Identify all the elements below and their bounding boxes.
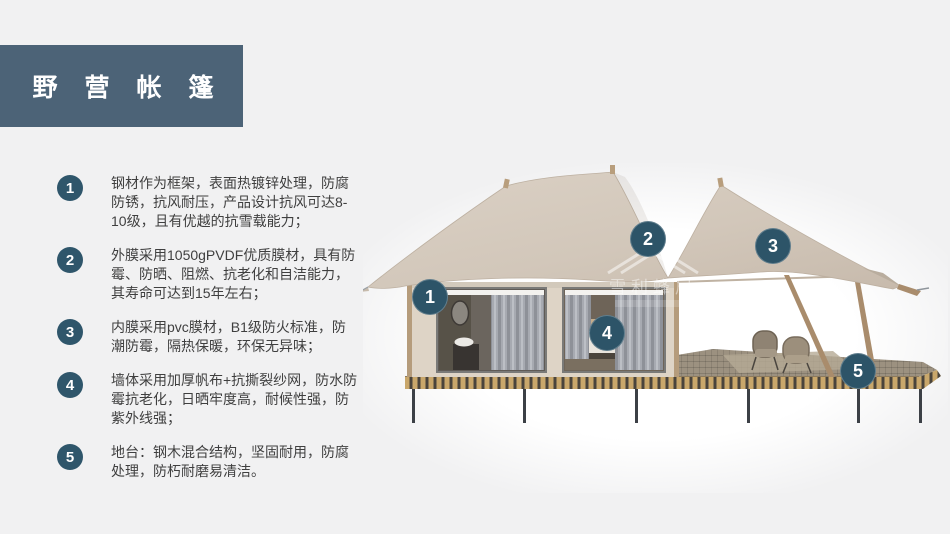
tent-svg: 雪利蜂居 [363, 163, 948, 493]
feature-number-badge: 3 [57, 319, 83, 345]
feature-text: 地台：钢木混合结构，坚固耐用，防腐处理，防朽耐磨易清洁。 [111, 443, 359, 481]
tent-illustration: 雪利蜂居 [363, 163, 948, 493]
watermark-text: 雪利蜂居 [609, 278, 697, 297]
feature-list: 1 钢材作为框架，表面热镀锌处理，防腐防锈，抗风耐压，产品设计抗风可达8-10级… [57, 174, 387, 496]
feature-item-4: 4 墙体采用加厚帆布+抗撕裂纱网，防水防霉抗老化，日晒牢度高，耐候性强，防紫外线… [57, 371, 387, 428]
left-window [437, 288, 546, 372]
feature-number-badge: 2 [57, 247, 83, 273]
page-title: 野营帐篷 [2, 68, 240, 104]
feature-number-badge: 4 [57, 372, 83, 398]
callout-badge-4: 4 [589, 315, 625, 351]
feature-text: 内膜采用pvc膜材，B1级防火标准，防潮防霉，隔热保暖，环保无异味； [111, 318, 359, 356]
feature-number-badge: 1 [57, 175, 83, 201]
callout-badge-3: 3 [755, 228, 791, 264]
steel-legs [412, 389, 922, 423]
feature-text: 外膜采用1050gPVDF优质膜材，具有防霉、防晒、阻燃、抗老化和自洁能力，其寿… [111, 246, 359, 303]
callout-badge-5: 5 [840, 353, 876, 389]
feature-item-3: 3 内膜采用pvc膜材，B1级防火标准，防潮防霉，隔热保暖，环保无异味； [57, 318, 387, 356]
feature-number-badge: 5 [57, 444, 83, 470]
feature-item-1: 1 钢材作为框架，表面热镀锌处理，防腐防锈，抗风耐压，产品设计抗风可达8-10级… [57, 174, 387, 231]
title-block: 野营帐篷 [0, 45, 243, 127]
feature-item-5: 5 地台：钢木混合结构，坚固耐用，防腐处理，防朽耐磨易清洁。 [57, 443, 387, 481]
callout-badge-2: 2 [630, 221, 666, 257]
callout-badge-1: 1 [412, 279, 448, 315]
feature-item-2: 2 外膜采用1050gPVDF优质膜材，具有防霉、防晒、阻燃、抗老化和自洁能力，… [57, 246, 387, 303]
feature-text: 钢材作为框架，表面热镀锌处理，防腐防锈，抗风耐压，产品设计抗风可达8-10级，且… [111, 174, 359, 231]
slide: 野营帐篷 1 钢材作为框架，表面热镀锌处理，防腐防锈，抗风耐压，产品设计抗风可达… [0, 0, 950, 534]
feature-text: 墙体采用加厚帆布+抗撕裂纱网，防水防霉抗老化，日晒牢度高，耐候性强，防紫外线强； [111, 371, 359, 428]
